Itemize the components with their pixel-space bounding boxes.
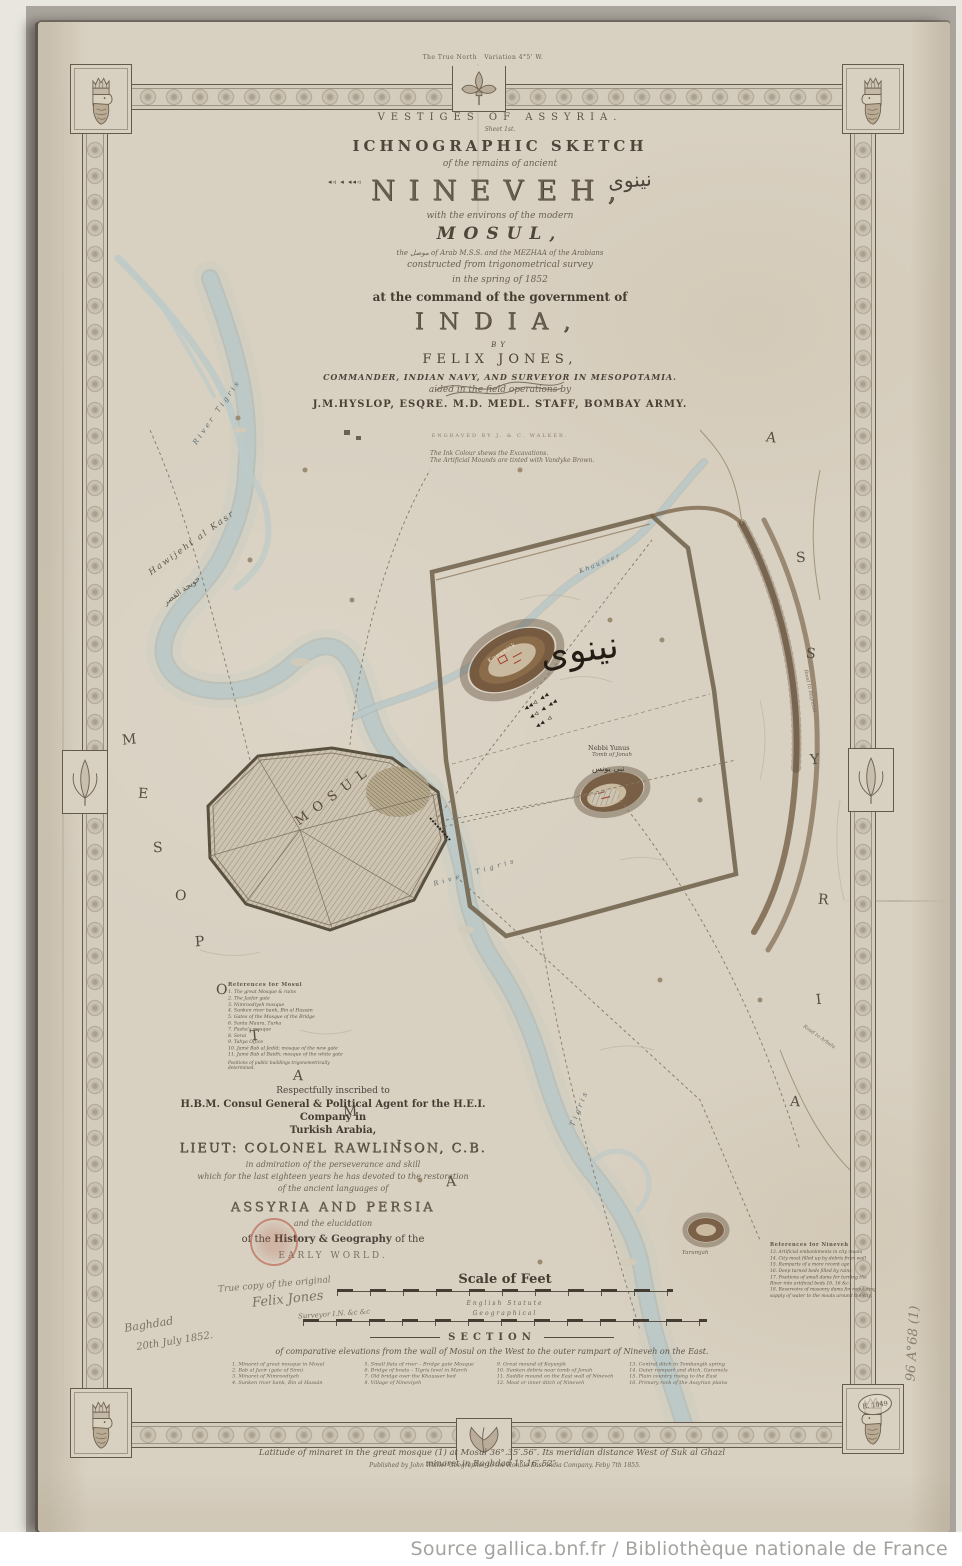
assyrian-head-icon [846,68,900,130]
section-item: 8. Village of Ninevíyeh [364,1380,488,1386]
title-line: ICHNOGRAPHIC SKETCH [270,137,730,156]
title-line: BY [270,341,730,350]
dedication-assyria-persia: ASSYRIA AND PERSIA [168,1200,498,1217]
section-item-list: 1. Minaret of great mosque in Mosul 2. B… [232,1361,753,1385]
section-item-number: 2. [232,1367,237,1373]
dedication-early-world: EARLY WORLD. [168,1251,498,1263]
section-item-text: Plain country rising to the East [639,1373,718,1379]
legend-title: References for Mosul [228,982,350,988]
section-description: of comparative elevations from the wall … [232,1347,752,1356]
legend-title: References for Nineveh [770,1242,876,1248]
region-letter: A [789,1094,800,1111]
dedication-line: H.B.M. Consul General & Political Agent … [168,1098,498,1124]
mound-label-nebbi-yunus: Nebbi Yunus [588,744,630,752]
title-line: aided in the field operations by [270,385,730,396]
section-item-text: Village of Ninevíyeh [371,1380,422,1386]
map-title-block: VESTIGES OF ASSYRIA. Sheet 1st. ICHNOGRA… [270,112,730,465]
section-item-text: Small flats of river – Bridge gate Mosqu… [371,1361,474,1367]
map-scan: The True North Variation 4°5' W. VESTIGE… [0,0,962,1532]
dedication-text: of the [395,1234,424,1245]
section-item-number: 15. [629,1373,637,1379]
title-line: constructed from trigonometrical survey [270,260,730,271]
section-item-number: 1. [232,1361,237,1367]
section-item: 7. Old bridge over the Khausser bed [364,1373,488,1379]
section-item-text: Saddle mound on the East wall of Nineveh [506,1373,613,1379]
region-letter: Y [809,752,819,769]
assistant-name: J.M.HYSLOP, ESQRE. M.D. MEDL. STAFF, BOM… [270,399,730,412]
true-north-label: The True North [423,54,478,61]
author-rank: COMMANDER, INDIAN NAVY, AND SURVEYOR IN … [270,372,730,382]
section-item-number: 11. [497,1373,505,1379]
section-item: 2. Bab al Jazír (gate of Sinn) [232,1367,356,1373]
publisher-imprint: Published by John Walker Geographer to t… [320,1462,690,1469]
region-letter: A [292,1068,303,1085]
section-item-text: Minaret of Nimroodíyeh [238,1373,299,1379]
colour-key-note: The Ink Colour shews the Excavations. Th… [430,450,640,465]
scale-bar-english [337,1291,673,1297]
references-for-nineveh: References for Nineveh 13. Artificial em… [770,1242,876,1299]
section-item-number: 14. [629,1367,637,1373]
winged-figure-icon [66,754,104,810]
dedication-line: of the History & Geography of the [168,1233,498,1246]
region-letter: P [194,934,205,951]
region-letter: O [216,982,228,999]
section-item: 1. Minaret of great mosque in Mosul [232,1361,356,1367]
author-name: FELIX JONES, [270,352,730,368]
section-item-text: Outer rampart and ditch, Garamels [639,1367,728,1373]
dedication-line: Respectfully inscribed to [168,1086,498,1098]
section-heading: SECTION [232,1332,752,1343]
colour-key-line1: The Ink Colour shews the Excavations. [430,450,548,457]
section-item: 12. Moat or inner ditch of Nineveh [497,1380,621,1386]
section-item: 3. Minaret of Nimroodíyeh [232,1373,356,1379]
section-item: 5. Small flats of river – Bridge gate Mo… [364,1361,488,1367]
north-mark-block [452,66,506,112]
section-item: 10. Sunken debris near tomb of Jonah [497,1367,621,1373]
title-cuneiform-mark: ◂◃ ◂ ◂◂◃ [328,178,362,186]
section-item-number: 10. [497,1367,505,1373]
section-item-text: Old bridge over the Khausser bed [371,1373,456,1379]
title-arabic-nineveh: نينوى [607,167,652,194]
section-item: 15. Plain country rising to the East [629,1373,753,1379]
source-text: Source gallica.bnf.fr / Bibliothèque nat… [411,1538,948,1560]
region-letter: M [121,731,137,748]
section-item: 9. Great mound of Koyunjik [497,1361,621,1367]
section-item-text: Sunken debris near tomb of Jonah [506,1367,592,1373]
dedication-line: of the ancient languages of [168,1184,498,1194]
title-line: at the command of the government of [270,290,730,305]
region-letter: S [153,840,163,856]
title-mosul: MOSUL, [270,224,730,245]
title-line: with the environs of the modern [270,211,730,222]
title-line: of the remains of ancient [270,159,730,170]
section-item: 4. Sunken river bank, Bin al Hassán [232,1380,356,1386]
region-letter: O [174,888,187,905]
gallica-source-bar: Source gallica.bnf.fr / Bibliothèque nat… [0,1532,962,1566]
assyrian-head-icon [74,68,128,130]
corner-ornament-assyrian-head [842,64,904,134]
section-item-text: Minaret of great mosque in Mosul [238,1361,324,1367]
section-item-text: Primary rock of the Assyrian plains [639,1380,728,1386]
assyrian-head-icon [74,1392,128,1454]
corner-ornament-assyrian-head [70,64,132,134]
dedication-line: and the elucidation [168,1219,498,1229]
dedication-block: Respectfully inscribed to H.B.M. Consul … [168,1086,498,1263]
dedication-line: Turkish Arabia, [168,1124,498,1137]
colour-key-line2: The Artificial Mounds are tinted with Va… [430,457,594,464]
legend-item: 18. Reservoirs of masonry dams for regul… [770,1286,876,1299]
true-north-note: The True North Variation 4°5' W. [398,54,568,61]
border-ornament-winged-figure [62,750,108,814]
section-item: 14. Outer rampart and ditch, Garamels [629,1367,753,1373]
title-line: the موصل of Arab M.S.S. and the MEZHAA o… [270,249,730,258]
section-item-number: 16. [629,1380,637,1386]
section-item-number: 4. [232,1380,237,1386]
section-item-text: Great mound of Koyunjik [503,1361,566,1367]
engraver-credit: ENGRAVED BY J. & C. WALKER. [270,433,730,439]
section-item-number: 7. [364,1373,369,1379]
section-item-number: 8. [364,1380,369,1386]
legend-item-list: 13. Artificial embankments in city moats… [770,1249,876,1299]
section-item-number: 9. [497,1361,502,1367]
section-item-text: Moat or inner ditch of Nineveh [506,1380,584,1386]
section-item: 16. Primary rock of the Assyrian plains [629,1380,753,1386]
region-letter: S [805,646,816,663]
sheet-number: Sheet 1st. [270,126,730,134]
references-for-mosul: References for Mosul 1. The great Mosque… [228,982,350,1070]
series-title: VESTIGES OF ASSYRIA. [270,112,730,125]
mound-label-yarumjah: Yarumjah [682,1250,708,1256]
section-item-text: Sunken river bank, Bin al Hassán [238,1380,322,1386]
scale-label: English Statute [300,1300,710,1307]
section-item-text: Bab al Jazír (gate of Sinn) [238,1367,303,1373]
dedication-rawlinson: LIEUT: COLONEL RAWLINSON, C.B. [168,1141,498,1158]
scale-label: Geographical [300,1310,710,1317]
region-letter: E [137,786,148,803]
legend-item-list: 1. The great Mosque & ruins2. The Jazfar… [228,989,350,1058]
section-item-text: Central ditch in Tombangik spring [639,1361,725,1367]
legend-footnote: Positions of public buildings trigonomet… [228,1060,350,1070]
section-item-text: Bridge of boats – Tigris level in March [371,1367,467,1373]
section-item-number: 6. [364,1367,369,1373]
scale-title: Scale of Feet [300,1272,710,1287]
gallica-scan-page: The True North Variation 4°5' W. VESTIGE… [0,0,962,1566]
fleur-de-lis-north-icon [456,70,502,108]
corner-ornament-assyrian-head [70,1388,132,1458]
title-line: in the spring of 1852 [270,275,730,286]
variation-label: Variation 4°5' W. [484,54,543,61]
region-letter: S [795,550,806,567]
title-india: INDIA, [270,308,730,337]
section-item-number: 13. [629,1361,637,1367]
section-item: 11. Saddle mound on the East wall of Nin… [497,1373,621,1379]
scale-bar-geographical [303,1321,707,1327]
section-item-number: 12. [497,1380,505,1386]
legend-item: 11. Jamé Bab al Baidh; mosque of the whi… [228,1052,350,1058]
scale-of-feet: Scale of Feet English Statute Geographic… [300,1272,710,1327]
section-block: SECTION of comparative elevations from t… [232,1332,752,1469]
section-item-number: 5. [364,1361,369,1367]
section-item: 6. Bridge of boats – Tigris level in Mar… [364,1367,488,1373]
dedication-line: which for the last eighteen years he has… [168,1172,498,1182]
legend-item: 17. Positions of small dams for turning … [770,1274,876,1287]
label-tomb-of-jonah: Tomb of Jonah [592,752,632,758]
section-item: 13. Central ditch in Tombangik spring [629,1361,753,1367]
latitude-note: Latitude of minaret in the great mosque … [232,1448,752,1458]
section-item-number: 3. [232,1373,237,1379]
label-nebbi-yunus-arabic: نبي يونس [592,764,625,773]
winged-figure-icon [852,752,890,808]
dedication-line: in admiration of the perseverance and sk… [168,1160,498,1170]
region-letter: R [817,892,829,909]
border-ornament-winged-figure [848,748,894,812]
